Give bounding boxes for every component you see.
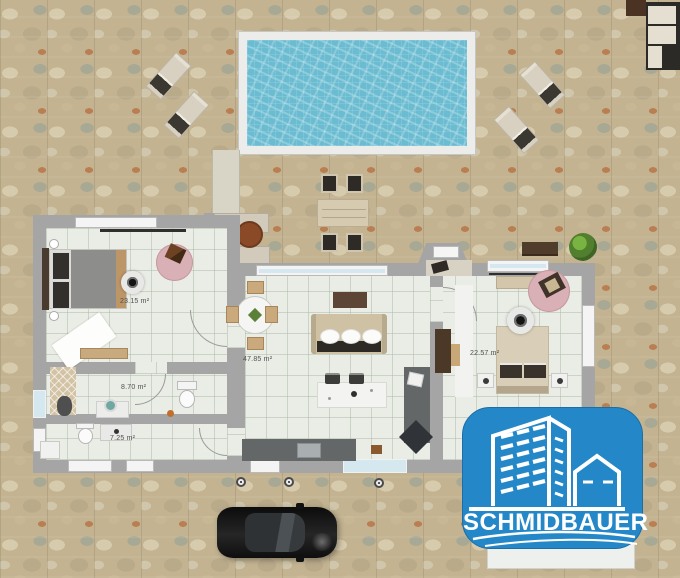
area-label-wc: 7.25 m² bbox=[110, 435, 135, 442]
toilet bbox=[78, 428, 93, 444]
window-kitchen-bottom bbox=[343, 459, 407, 473]
area-label-bathroom: 8.70 m² bbox=[121, 384, 146, 391]
bedside-lamp bbox=[49, 311, 59, 321]
area-label-bedroom2: 22.57 m² bbox=[470, 350, 499, 357]
car bbox=[217, 507, 337, 558]
ceiling-fan bbox=[121, 271, 144, 294]
dining-chair bbox=[226, 306, 239, 323]
window-bottom-left-2 bbox=[126, 460, 154, 472]
bedside-lamp bbox=[49, 239, 59, 249]
door-gap-bathroom bbox=[135, 362, 167, 374]
nightstand bbox=[551, 373, 568, 388]
toilet-tank bbox=[177, 381, 197, 390]
wardrobe bbox=[435, 329, 451, 373]
kitchen-counter bbox=[242, 439, 356, 461]
double-bed bbox=[49, 249, 127, 309]
window-living-top bbox=[256, 265, 388, 276]
dining-chair bbox=[247, 337, 264, 350]
outdoor-dining-table bbox=[317, 199, 369, 227]
curtain-rail bbox=[100, 229, 186, 232]
media-console bbox=[333, 292, 367, 308]
kitchen-island bbox=[317, 382, 387, 408]
decor-item bbox=[167, 410, 174, 417]
window-right-wall bbox=[582, 305, 595, 367]
floor-plan-canvas: 23.15 m² 47.85 m² 8.70 m² 7.25 m² 22.57 … bbox=[0, 0, 680, 578]
window-left-wall bbox=[33, 390, 46, 418]
window-bedroom2-top bbox=[487, 260, 549, 272]
outdoor-chair bbox=[321, 233, 338, 252]
round-table bbox=[236, 221, 263, 248]
logo-text: SCHMIDBAUER bbox=[463, 509, 642, 537]
runner-rug bbox=[455, 285, 473, 397]
round-mirror bbox=[104, 399, 117, 412]
ground-lamp bbox=[236, 477, 246, 487]
walkway bbox=[212, 150, 240, 216]
ceiling-fan-2 bbox=[507, 307, 534, 334]
dishes bbox=[407, 372, 424, 388]
shelf bbox=[451, 344, 460, 366]
bench bbox=[80, 348, 128, 359]
headboard-panel bbox=[42, 248, 49, 310]
side-table bbox=[626, 0, 646, 16]
nightstand bbox=[477, 373, 494, 388]
outdoor-chair bbox=[346, 174, 363, 193]
bar-stool bbox=[349, 373, 364, 384]
potted-plant bbox=[569, 233, 597, 261]
bar-stool bbox=[325, 373, 340, 384]
window-bottom-left bbox=[68, 460, 112, 472]
cabinet bbox=[40, 441, 60, 459]
front-door bbox=[433, 246, 459, 258]
ground-lamp bbox=[284, 477, 294, 487]
dining-chair bbox=[247, 281, 264, 294]
double-bed-2 bbox=[496, 326, 549, 394]
outdoor-corner-sofa bbox=[646, 2, 680, 70]
schmidbauer-logo: SCHMIDBAUER bbox=[462, 407, 643, 549]
outdoor-chair bbox=[321, 174, 338, 193]
toilet bbox=[179, 390, 195, 408]
door-bottom bbox=[250, 460, 280, 473]
area-label-bedroom: 23.15 m² bbox=[120, 298, 149, 305]
window-bedroom-top bbox=[75, 217, 157, 228]
floor-lamp bbox=[57, 396, 72, 416]
door-gap-bedroom2 bbox=[430, 287, 443, 322]
ground-lamp bbox=[374, 478, 384, 488]
wooden-bench bbox=[522, 242, 558, 256]
sofa bbox=[311, 314, 387, 354]
swimming-pool bbox=[247, 40, 467, 146]
outdoor-chair bbox=[346, 233, 363, 252]
dining-chair bbox=[265, 306, 278, 323]
area-label-living: 47.85 m² bbox=[243, 356, 272, 363]
cutting-board bbox=[371, 445, 382, 454]
